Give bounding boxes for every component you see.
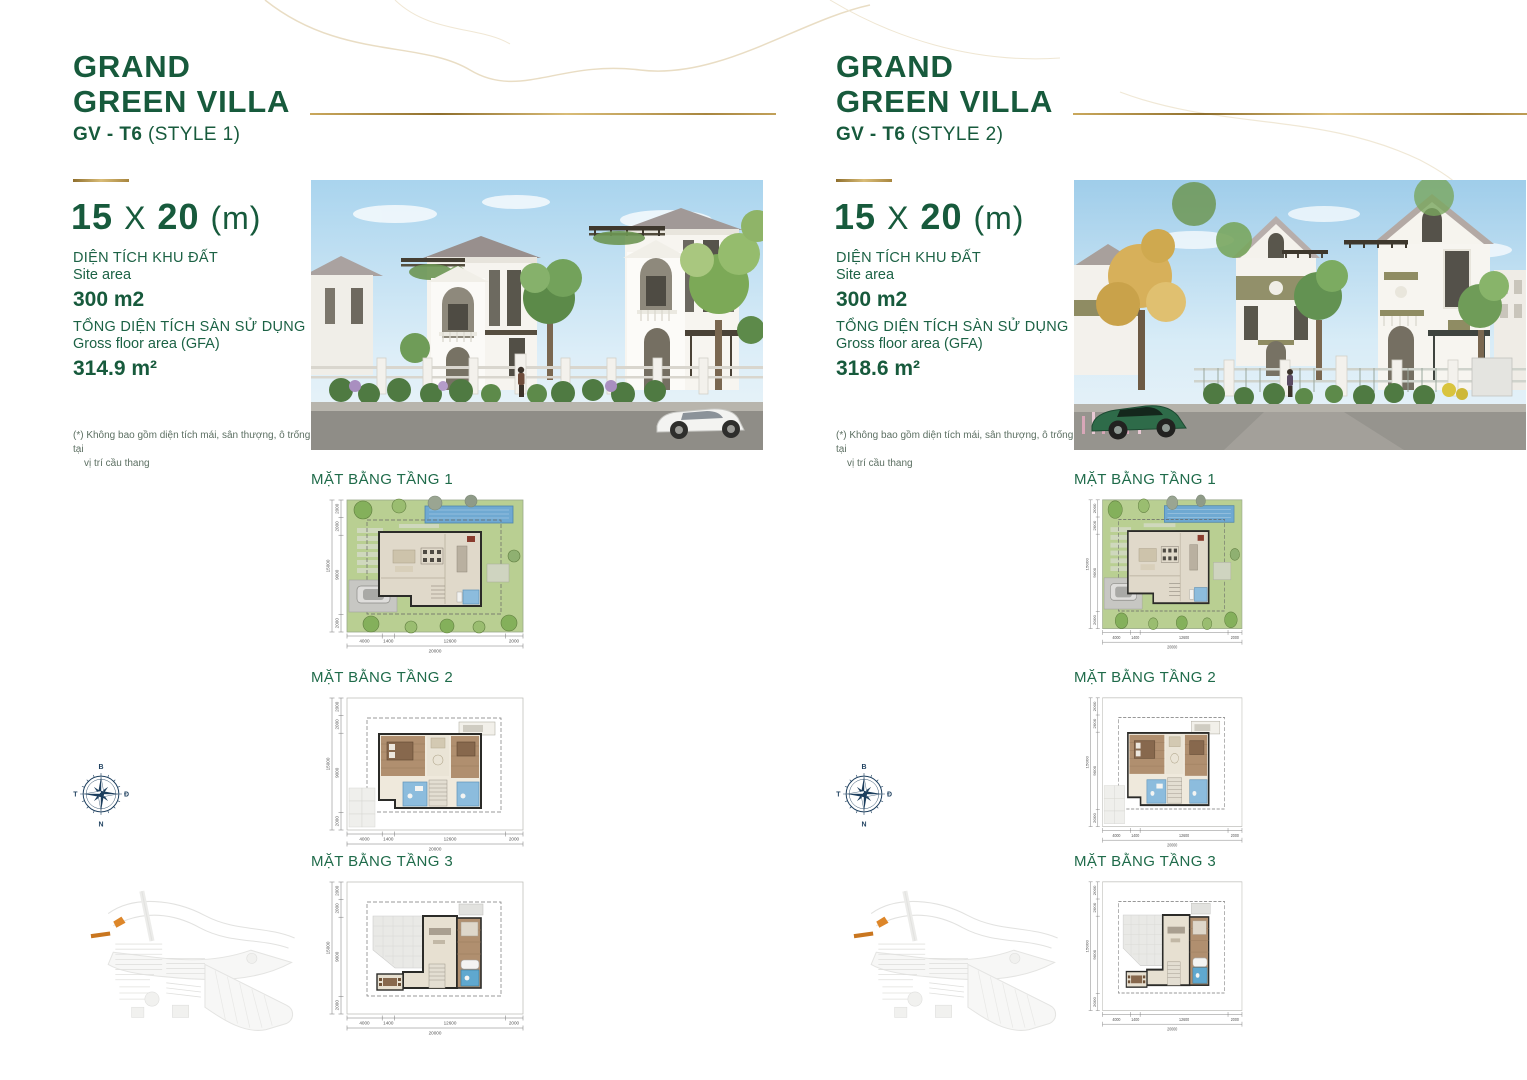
- gfa-value: 314.9 m²: [73, 357, 343, 381]
- floor-plan-2-label: MẶT BẰNG TẦNG 2: [1074, 669, 1216, 686]
- lot-width: 15: [834, 196, 876, 237]
- floor-plan-1: [311, 494, 571, 654]
- gold-accent-bar: [836, 179, 892, 182]
- footnote: (*) Không bao gồm diện tích mái, sân thư…: [836, 429, 1086, 471]
- villa-style-label: (STYLE 2): [911, 124, 1003, 145]
- masterplan-locator-map: [52, 885, 307, 1048]
- floor-plan-1: [1074, 494, 1280, 650]
- villa-style-label: (STYLE 1): [148, 124, 240, 145]
- style-2-column: GRAND GREEN VILLA GV - T6 (STYLE 2) 15 X…: [763, 0, 1527, 1080]
- lot-depth: 20: [920, 196, 962, 237]
- lot-dimensions: 15 X 20 (m): [834, 196, 1024, 238]
- site-area-spec: DIỆN TÍCH KHU ĐẤT Site area 300 m2: [836, 250, 1106, 312]
- lot-dimensions: 15 X 20 (m): [71, 196, 261, 238]
- site-area-label-en: Site area: [836, 267, 1106, 284]
- site-area-value: 300 m2: [836, 288, 1106, 312]
- floor-plan-2-label: MẶT BẰNG TẦNG 2: [311, 669, 453, 686]
- site-area-value: 300 m2: [73, 288, 343, 312]
- floor-plan-1-label: MẶT BẰNG TẦNG 1: [311, 471, 453, 488]
- floor-plan-1-label: MẶT BẰNG TẦNG 1: [1074, 471, 1216, 488]
- site-area-spec: DIỆN TÍCH KHU ĐẤT Site area 300 m2: [73, 250, 343, 312]
- title-line-2: GREEN VILLA: [836, 85, 1053, 120]
- floor-plan-3-label: MẶT BẰNG TẦNG 3: [311, 853, 453, 870]
- compass-rose: [70, 758, 132, 830]
- site-area-label-en: Site area: [73, 267, 343, 284]
- floor-plan-3: [1074, 876, 1280, 1032]
- villa-title-block: GRAND GREEN VILLA GV - T6 (STYLE 2): [836, 50, 1053, 146]
- compass-rose: [833, 758, 895, 830]
- brochure-page: 4000 1400 12600 2000 20000 2000 2000 900…: [0, 0, 1527, 1080]
- title-line-1: GRAND: [836, 50, 1053, 85]
- footnote-line-2: vị trí cầu thang: [836, 457, 1086, 471]
- villa-code: GV - T6 (STYLE 2): [836, 124, 1053, 146]
- title-line-2: GREEN VILLA: [73, 85, 290, 120]
- dimension-unit: (m): [973, 200, 1024, 236]
- gfa-spec: TỔNG DIỆN TÍCH SÀN SỬ DỤNG Gross floor a…: [836, 319, 1106, 381]
- floor-plan-3: [311, 876, 571, 1036]
- floor-plan-3-label: MẶT BẰNG TẦNG 3: [1074, 853, 1216, 870]
- title-line-1: GRAND: [73, 50, 290, 85]
- footnote-line-1: (*) Không bao gồm diện tích mái, sân thư…: [73, 429, 323, 457]
- footnote: (*) Không bao gồm diện tích mái, sân thư…: [73, 429, 323, 471]
- background-villa: [311, 256, 383, 375]
- villa-code-id: GV - T6: [73, 124, 142, 145]
- gfa-value: 318.6 m²: [836, 357, 1106, 381]
- villa-code-id: GV - T6: [836, 124, 905, 145]
- gfa-spec: TỔNG DIỆN TÍCH SÀN SỬ DỤNG Gross floor a…: [73, 319, 343, 381]
- dimension-separator: X: [124, 200, 146, 236]
- site-area-label-vi: DIỆN TÍCH KHU ĐẤT: [836, 250, 1106, 267]
- style-1-column: GRAND GREEN VILLA GV - T6 (STYLE 1) 15 X…: [0, 0, 764, 1080]
- sidewalk: [311, 402, 763, 411]
- villa-code: GV - T6 (STYLE 1): [73, 124, 290, 146]
- villa-photo-style-1: [311, 180, 763, 450]
- masterplan-locator-map: [815, 885, 1070, 1048]
- floor-plan-2: [311, 692, 571, 852]
- lot-depth: 20: [157, 196, 199, 237]
- floor-plan-2: [1074, 692, 1280, 848]
- lot-width: 15: [71, 196, 113, 237]
- gfa-label-vi: TỔNG DIỆN TÍCH SÀN SỬ DỤNG: [73, 319, 343, 336]
- gfa-label-en: Gross floor area (GFA): [73, 336, 343, 353]
- dimension-unit: (m): [210, 200, 261, 236]
- gold-divider-line: [1073, 113, 1527, 115]
- gfa-label-en: Gross floor area (GFA): [836, 336, 1106, 353]
- gold-accent-bar: [73, 179, 129, 182]
- site-area-label-vi: DIỆN TÍCH KHU ĐẤT: [73, 250, 343, 267]
- footnote-line-2: vị trí cầu thang: [73, 457, 323, 471]
- gfa-label-vi: TỔNG DIỆN TÍCH SÀN SỬ DỤNG: [836, 319, 1106, 336]
- gold-divider-line: [310, 113, 776, 115]
- villa-rendering-photo: [311, 180, 763, 450]
- villa-rendering-photo: [1074, 180, 1526, 450]
- villa-photo-style-2: [1074, 180, 1526, 450]
- dimension-separator: X: [887, 200, 909, 236]
- villa-title-block: GRAND GREEN VILLA GV - T6 (STYLE 1): [73, 50, 290, 146]
- footnote-line-1: (*) Không bao gồm diện tích mái, sân thư…: [836, 429, 1086, 457]
